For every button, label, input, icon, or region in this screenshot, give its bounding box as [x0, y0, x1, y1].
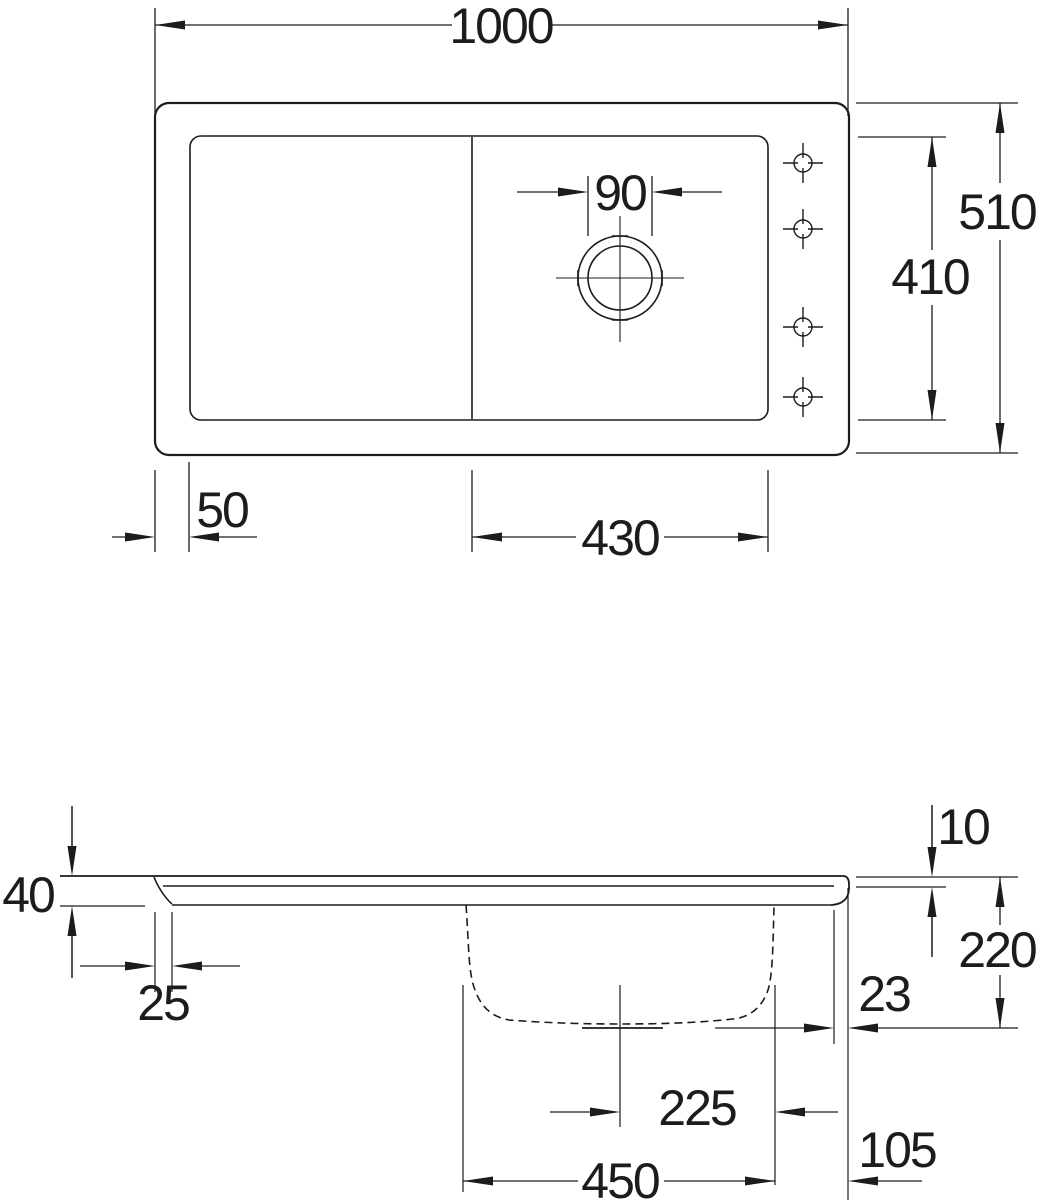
dim-bowl-outer-width: 450: [463, 1153, 775, 1200]
arrowhead-up: [928, 137, 937, 167]
arrowhead-right: [745, 1177, 775, 1186]
arrowhead-left: [125, 962, 155, 971]
arrowhead-left: [804, 1024, 834, 1033]
arrowhead-left: [472, 533, 502, 542]
arrowhead-down: [928, 847, 937, 877]
dim-label-left-edge-height: 40: [2, 867, 54, 923]
dim-label-bowl-depth: 220: [958, 922, 1036, 978]
dim-drain-center-offset: 225: [550, 1080, 838, 1136]
arrowhead-left: [125, 533, 155, 542]
dim-left-rim: 50: [112, 462, 257, 552]
tap-hole-ticks: [783, 209, 823, 249]
tap-hole-4: [783, 377, 823, 417]
dim-label-overall-depth: 510: [958, 184, 1036, 240]
extension-lines: [155, 462, 189, 552]
tap-hole-2: [783, 209, 823, 249]
arrowhead-right: [738, 533, 768, 542]
dim-label-inner-depth: 410: [891, 249, 969, 305]
tap-hole-ticks: [783, 143, 823, 183]
dim-label-left-rim: 50: [196, 482, 248, 538]
arrowhead-up: [996, 877, 1005, 907]
dim-label-right-overhang: 105: [858, 1122, 936, 1178]
drawing-sheet: 1000 90 410 510: [0, 0, 1038, 1200]
dim-left-edge-height: 40: [2, 806, 76, 978]
dim-front-lip: 25: [80, 962, 240, 1032]
technical-drawing: 1000 90 410 510: [0, 0, 1038, 1200]
arrowhead-right: [652, 188, 682, 197]
drain-centerline: [582, 985, 663, 1127]
dim-label-overall-width: 1000: [449, 0, 552, 54]
dim-bowl-depth: 220: [958, 877, 1036, 1028]
dim-label-rear-lip: 23: [858, 966, 910, 1022]
arrowhead-left: [155, 21, 185, 30]
arrowhead-down: [996, 998, 1005, 1028]
tap-hole-1: [783, 143, 823, 183]
dim-inner-depth: 410: [858, 137, 969, 420]
arrowhead-up: [996, 103, 1005, 133]
arrowhead-right: [172, 962, 202, 971]
dim-label-bowl-outer-width: 450: [581, 1153, 659, 1200]
arrowhead-down: [996, 423, 1005, 453]
arrowhead-right: [818, 21, 848, 30]
arrowhead-left: [558, 188, 588, 197]
dim-label-drain-hole: 90: [594, 165, 646, 221]
sink-outer-outline: [155, 103, 849, 455]
profile-left-bevel: [154, 877, 172, 904]
arrowhead-right: [848, 1024, 878, 1033]
arrowhead-left: [590, 1108, 620, 1117]
dim-label-rim-step: 10: [937, 799, 989, 855]
arrowhead-down: [928, 390, 937, 420]
arrowhead-left: [463, 1177, 493, 1186]
dim-label-front-lip: 25: [137, 975, 189, 1031]
tap-hole-ticks: [783, 377, 823, 417]
tap-hole-ticks: [783, 307, 823, 347]
extension-lines: [856, 877, 1018, 887]
drain-centerlines: [556, 216, 684, 342]
dim-right-overhang: 105: [848, 1122, 936, 1186]
arrowhead-right: [775, 1108, 805, 1117]
profile-top-surface: [60, 876, 849, 905]
arrowhead-down: [68, 846, 77, 876]
drain-hole: [556, 216, 684, 342]
side-view: 40 25 10 220 23: [2, 799, 1036, 1200]
arrowhead-up: [68, 906, 77, 936]
arrowhead-up: [928, 887, 937, 917]
dim-label-drain-center-offset: 225: [658, 1080, 736, 1136]
dim-label-bowl-width: 430: [581, 510, 659, 566]
tap-hole-3: [783, 307, 823, 347]
top-view: 1000 90 410 510: [112, 0, 1036, 566]
dim-bowl-width: 430: [472, 470, 768, 566]
dim-overall-width: 1000: [155, 0, 848, 116]
sink-profile: [60, 876, 849, 906]
